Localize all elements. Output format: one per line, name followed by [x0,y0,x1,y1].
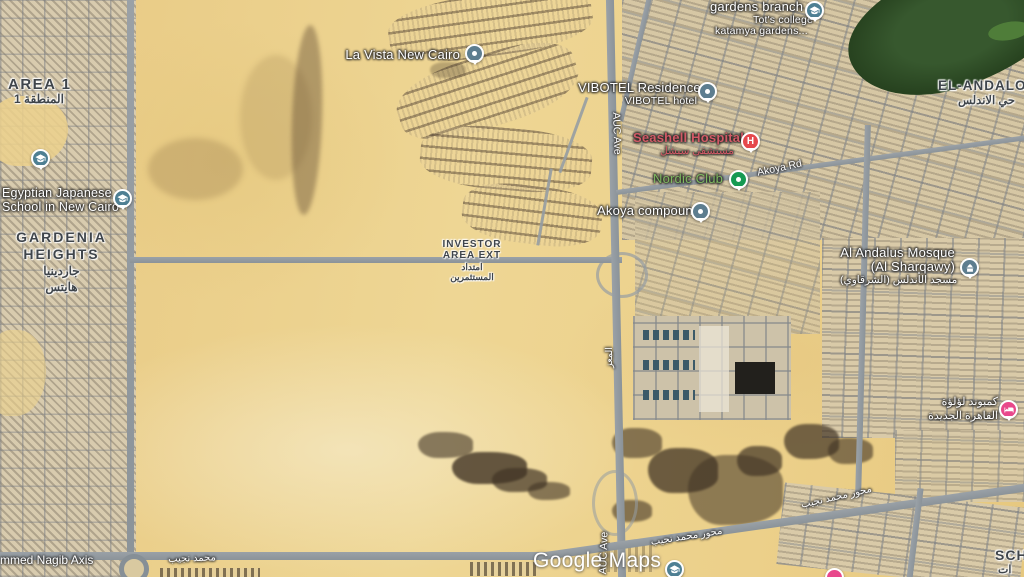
bed-glyph [1004,405,1014,415]
district-label-gardenia-2: HEIGHTS [14,246,109,262]
pin-dot [698,209,703,214]
poi-label-vibotel[interactable]: VIBOTEL Residence [578,80,701,95]
pin-dot [472,51,477,56]
district-label-investor-2: AREA EXT [432,250,512,261]
school-icon-bottom[interactable] [665,560,684,577]
urban-strip-1 [160,568,260,577]
industrial-facility [633,316,791,420]
district-label-area1-ar: المنطقة 1 [14,92,64,106]
mosque-icon[interactable] [960,258,979,277]
pin-dot [705,89,710,94]
urban-strip-2 [470,562,540,576]
poi-label-ej-school-1[interactable]: Egyptian Japanese [2,186,112,200]
poi-label-la-vista[interactable]: La Vista New Cairo [330,47,460,62]
terrain-dark-patch-4 [528,482,570,500]
road-label-nagib-axis: mmed Nagib Axis [0,553,93,567]
roundabout [119,554,149,577]
vibotel-pin-icon[interactable] [698,82,717,101]
district-label-gardenia-1: GARDENIA [14,229,109,245]
la-vista-pin-icon[interactable] [465,44,484,63]
lodging-icon[interactable] [999,400,1018,419]
district-label-investor-ar2: المستثمرين [432,272,512,283]
terrain-dark-patch-12 [430,62,466,78]
district-label-investor-1: INVESTOR [432,239,512,250]
poi-label-mosque-1[interactable]: Al Andalus Mosque [840,245,955,260]
road-label-nagib-axis-ar: محمد نجيب [168,552,216,565]
pin-dot [736,177,741,182]
facility-dark-block [735,362,775,394]
road-label-al-muizz-ar: المعز [604,347,615,368]
road-left-vertical [127,0,134,577]
poi-label-gardens-branch[interactable]: gardens branch [710,0,803,14]
poi-label-lulua-ar1[interactable]: كمبوند لؤلؤة [930,395,998,408]
district-label-gardenia-ar1: جاردينيا [14,264,109,278]
nordic-club-icon[interactable] [729,170,748,189]
google-maps-watermark: Google Maps [533,549,661,573]
district-label-el-andalos: EL-ANDALOS [938,78,1024,93]
road-label-auc-ave-north: AUC Ave [610,112,623,155]
district-label-gardenia-ar2: هايتس [14,280,109,294]
facility-light-block [699,326,729,412]
facility-tank-row [643,330,695,340]
school-icon-secondary[interactable] [31,149,50,168]
poi-label-ej-school-2[interactable]: School in New Cairo [2,200,119,214]
poi-sublabel-mosque-ar[interactable]: مسجد الأندلس (الشرقاوي) [840,274,955,286]
poi-label-nordic-club[interactable]: Nordic Club [653,171,723,186]
road-label-mehwar-nagib-south: محور محمد نجيب [650,526,723,548]
facility-tank-row [643,360,695,370]
poi-sublabel-katamya-gardens[interactable]: katamya gardens... [715,25,808,37]
akoya-pin-icon[interactable] [691,202,710,221]
mosque-glyph [965,263,975,273]
terrain-dark-patch-10 [828,438,873,464]
district-label-sch: SCH [995,547,1024,563]
district-label-el-andalos-ar: حي الاندلس [958,93,1015,107]
district-label-area1: AREA 1 [8,76,71,93]
poi-label-mosque-2[interactable]: (Al Sharqawy) [840,259,955,274]
road-investor-horizontal [130,257,622,263]
poi-label-lulua-ar2[interactable]: القاهرة الجديدة [918,409,998,422]
hospital-h-glyph: H [747,137,754,147]
poi-label-akoya-compound[interactable]: Akoya compound [597,203,700,218]
graduation-cap-icon [117,193,128,204]
graduation-cap-icon [35,153,46,164]
terrain-smudge-2 [148,138,243,200]
gardens-school-icon[interactable] [805,1,824,20]
facility-tank-row [643,390,695,400]
ej-school-icon[interactable] [113,189,132,208]
terrain-dark-patch-8 [737,446,782,476]
poi-sublabel-seashell-hospital-ar[interactable]: مستشفى سيشل [647,145,747,157]
graduation-cap-icon [809,5,820,16]
graduation-cap-icon [669,564,680,575]
map-canvas[interactable]: AREA 1 المنطقة 1 GARDENIA HEIGHTS جاردين… [0,0,1024,577]
hospital-icon[interactable]: H [741,132,760,151]
district-label-sch-ar: ات [998,563,1011,576]
terrain-dark-streak [289,25,326,216]
poi-label-seashell-hospital[interactable]: Seashell Hospital [633,130,744,145]
